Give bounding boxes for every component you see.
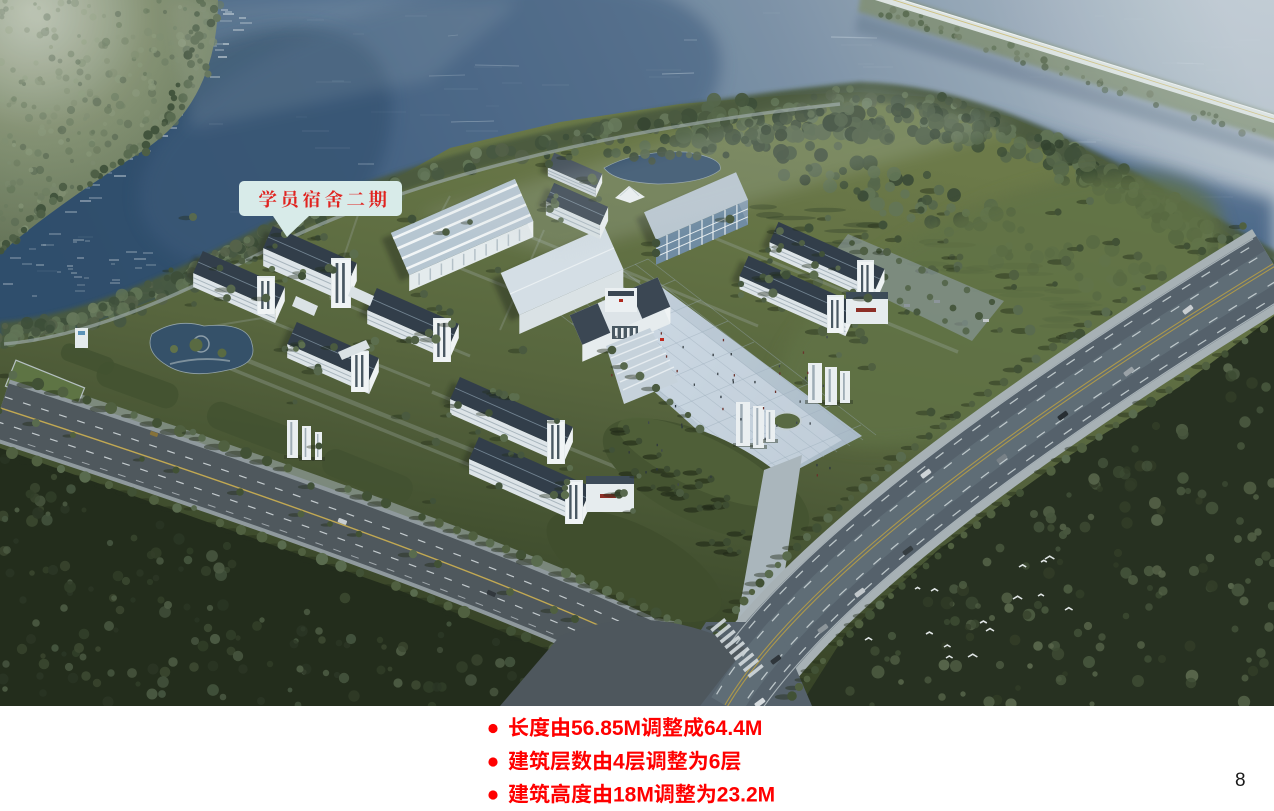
svg-text:64.4M: 64.4M — [704, 717, 762, 740]
svg-text:23.2M: 23.2M — [717, 784, 775, 807]
svg-text:6: 6 — [709, 751, 721, 774]
svg-text:18M: 18M — [613, 784, 654, 807]
svg-text:56.85M: 56.85M — [571, 717, 641, 740]
svg-text:8: 8 — [1235, 770, 1246, 791]
svg-text:4: 4 — [613, 751, 625, 774]
